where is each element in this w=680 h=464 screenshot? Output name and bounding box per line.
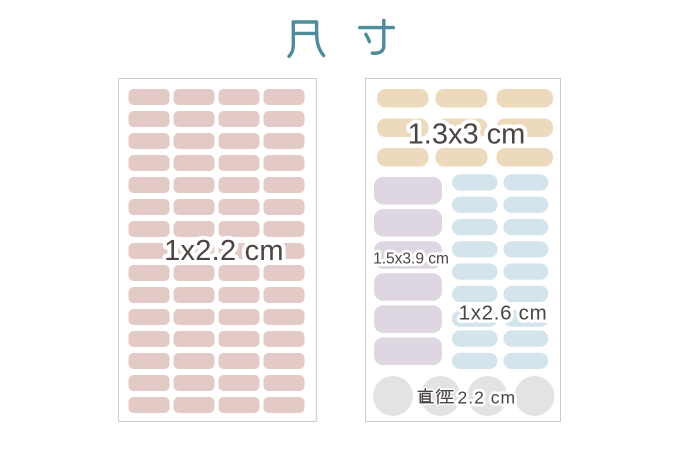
svg-text:1.3x3 cm: 1.3x3 cm <box>408 119 526 151</box>
svg-text:1.5x3.9 cm: 1.5x3.9 cm <box>373 251 449 268</box>
svg-text:1x2.6 cm: 1x2.6 cm <box>459 302 548 325</box>
svg-text:2.2 cm: 2.2 cm <box>458 388 517 408</box>
svg-text:1x2.2 cm: 1x2.2 cm <box>164 235 284 267</box>
